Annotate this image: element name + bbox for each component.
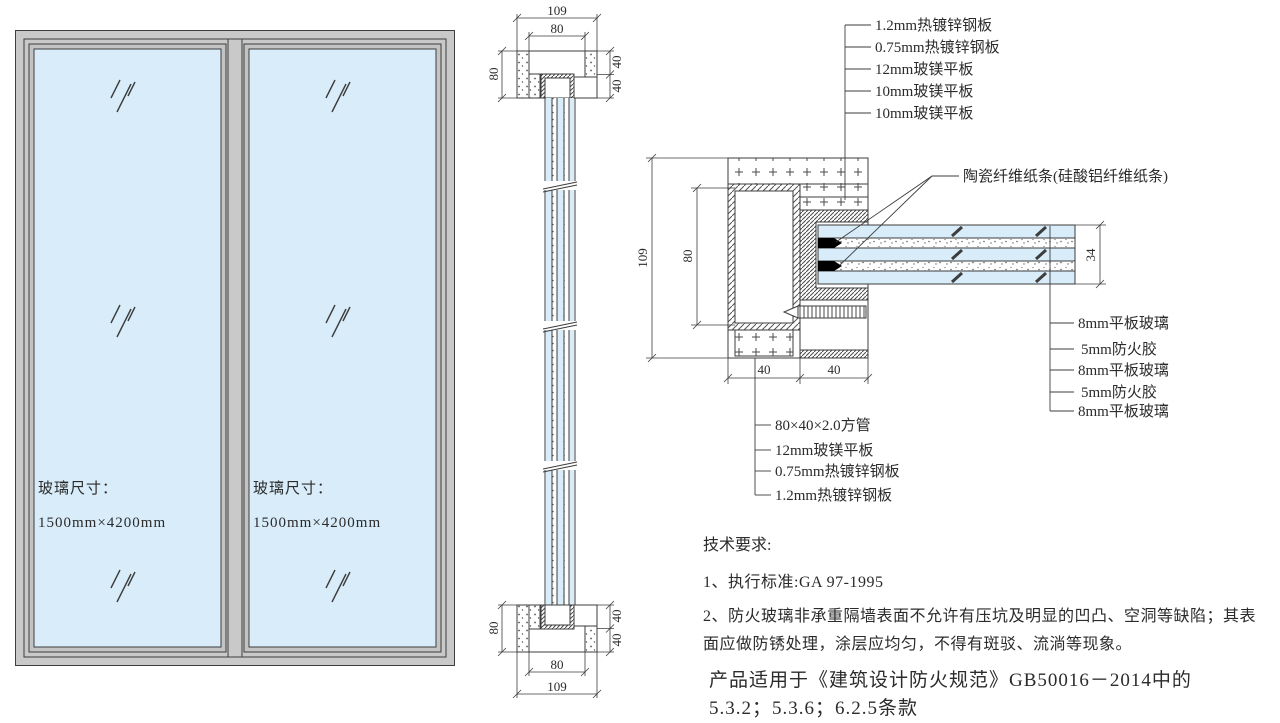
notes-applicability-line1: 产品适用于《建筑设计防火规范》GB50016－2014中的 [709,670,1192,691]
label-steel-1.2-bottom: 1.2mm热镀锌钢板 [775,486,892,504]
board-10mm-b [800,197,868,210]
gel-layer-2 [818,261,1075,271]
elevation-view: 玻璃尺寸： 1500mm×4200mm 玻璃尺寸： 1500mm×4200mm [15,30,455,666]
technical-notes: 技术要求: 1、执行标准:GA 97-1995 2、防火玻璃非承重隔墙表面不允许… [703,531,1271,723]
glass-pane-1 [34,49,221,647]
label-glass-8-a: 8mm平板玻璃 [1078,314,1169,332]
glass-size-value-1: 1500mm×4200mm [38,515,166,531]
head-left-board-2 [529,74,540,98]
glass-pane-2 [249,49,436,647]
sill-right-board [585,626,597,652]
dim-bottom-109: 109 [547,679,567,694]
notes-item-standard: 1、执行标准:GA 97-1995 [703,568,1271,592]
glass-size-title-2: 玻璃尺寸： [253,480,333,497]
square-tube-cavity [735,191,793,323]
head-channel-slot [545,78,570,98]
label-gel-5-b: 5mm防火胶 [1081,384,1157,401]
label-steel-0.75-bottom: 0.75mm热镀锌钢板 [775,462,900,480]
board-cap-bottom [735,330,793,356]
label-glass-8-c: 8mm平板玻璃 [1078,402,1169,420]
dim-detail-80: 80 [680,250,695,263]
glass-column [545,98,575,605]
label-steel-1.2-top: 1.2mm热镀锌钢板 [875,16,992,34]
label-square-tube: 80×40×2.0方管 [775,417,871,434]
detail-view: 109 80 40 40 34 1.2mm热镀锌钢板 0.75mm热镀锌钢板 1… [630,0,1280,530]
label-ceramic-fiber: 陶瓷纤维纸条(硅酸铝纤维纸条) [963,168,1168,185]
board-10mm-a [800,184,868,197]
label-steel-0.75-top: 0.75mm热镀锌钢板 [875,38,1000,56]
dim-bottom-left-80: 80 [486,622,501,635]
label-mgo-10-b: 10mm玻镁平板 [875,104,973,122]
dim-top-80: 80 [551,21,564,36]
sill-channel-slot [545,605,570,625]
label-mgo-10-a: 10mm玻镁平板 [875,82,973,100]
notes-applicability-line2: 5.3.2；5.3.6；6.2.5条款 [709,698,918,719]
screw [784,306,866,318]
label-gel-5-a: 5mm防火胶 [1081,341,1157,358]
sill-left-board-2 [529,605,540,629]
head-right-board [585,51,597,77]
gel-layer-1 [818,238,1075,248]
dim-top-109: 109 [547,4,567,18]
dim-bottom-right-40a: 40 [609,610,624,623]
dim-bottom-80: 80 [551,657,564,672]
head-left-board [517,51,529,98]
dim-detail-109: 109 [635,248,650,268]
sill-left-board [517,605,529,652]
dim-top-right-40a: 40 [609,56,624,69]
glass-size-value-2: 1500mm×4200mm [253,515,381,531]
dim-top-right-40b: 40 [609,80,624,93]
dim-detail-40b: 40 [828,362,841,377]
dim-bottom-right-40b: 40 [609,634,624,647]
sill-right-step [573,605,597,626]
label-glass-8-b: 8mm平板玻璃 [1078,361,1169,379]
label-mgo-12-bottom: 12mm玻镁平板 [775,441,873,459]
board-12mm [728,158,868,184]
notes-applicability: 产品适用于《建筑设计防火规范》GB50016－2014中的 5.3.2；5.3.… [709,667,1271,723]
dim-detail-40a: 40 [758,362,771,377]
glass-size-title-1: 玻璃尺寸： [38,480,118,497]
vertical-section-view: 109 80 80 40 40 80 40 40 80 109 [485,4,625,710]
head-right-step [573,77,597,98]
label-mgo-12-top: 12mm玻镁平板 [875,60,973,78]
dim-top-left-80: 80 [486,68,501,81]
dim-detail-34: 34 [1083,248,1098,262]
notes-title: 技术要求: [703,531,1271,555]
notes-item-surface: 2、防火玻璃非承重隔墙表面不允许有压坑及明显的凹凸、空洞等缺陷；其表面应做防锈处… [703,603,1271,658]
right-box-bottom-wall [800,350,868,358]
